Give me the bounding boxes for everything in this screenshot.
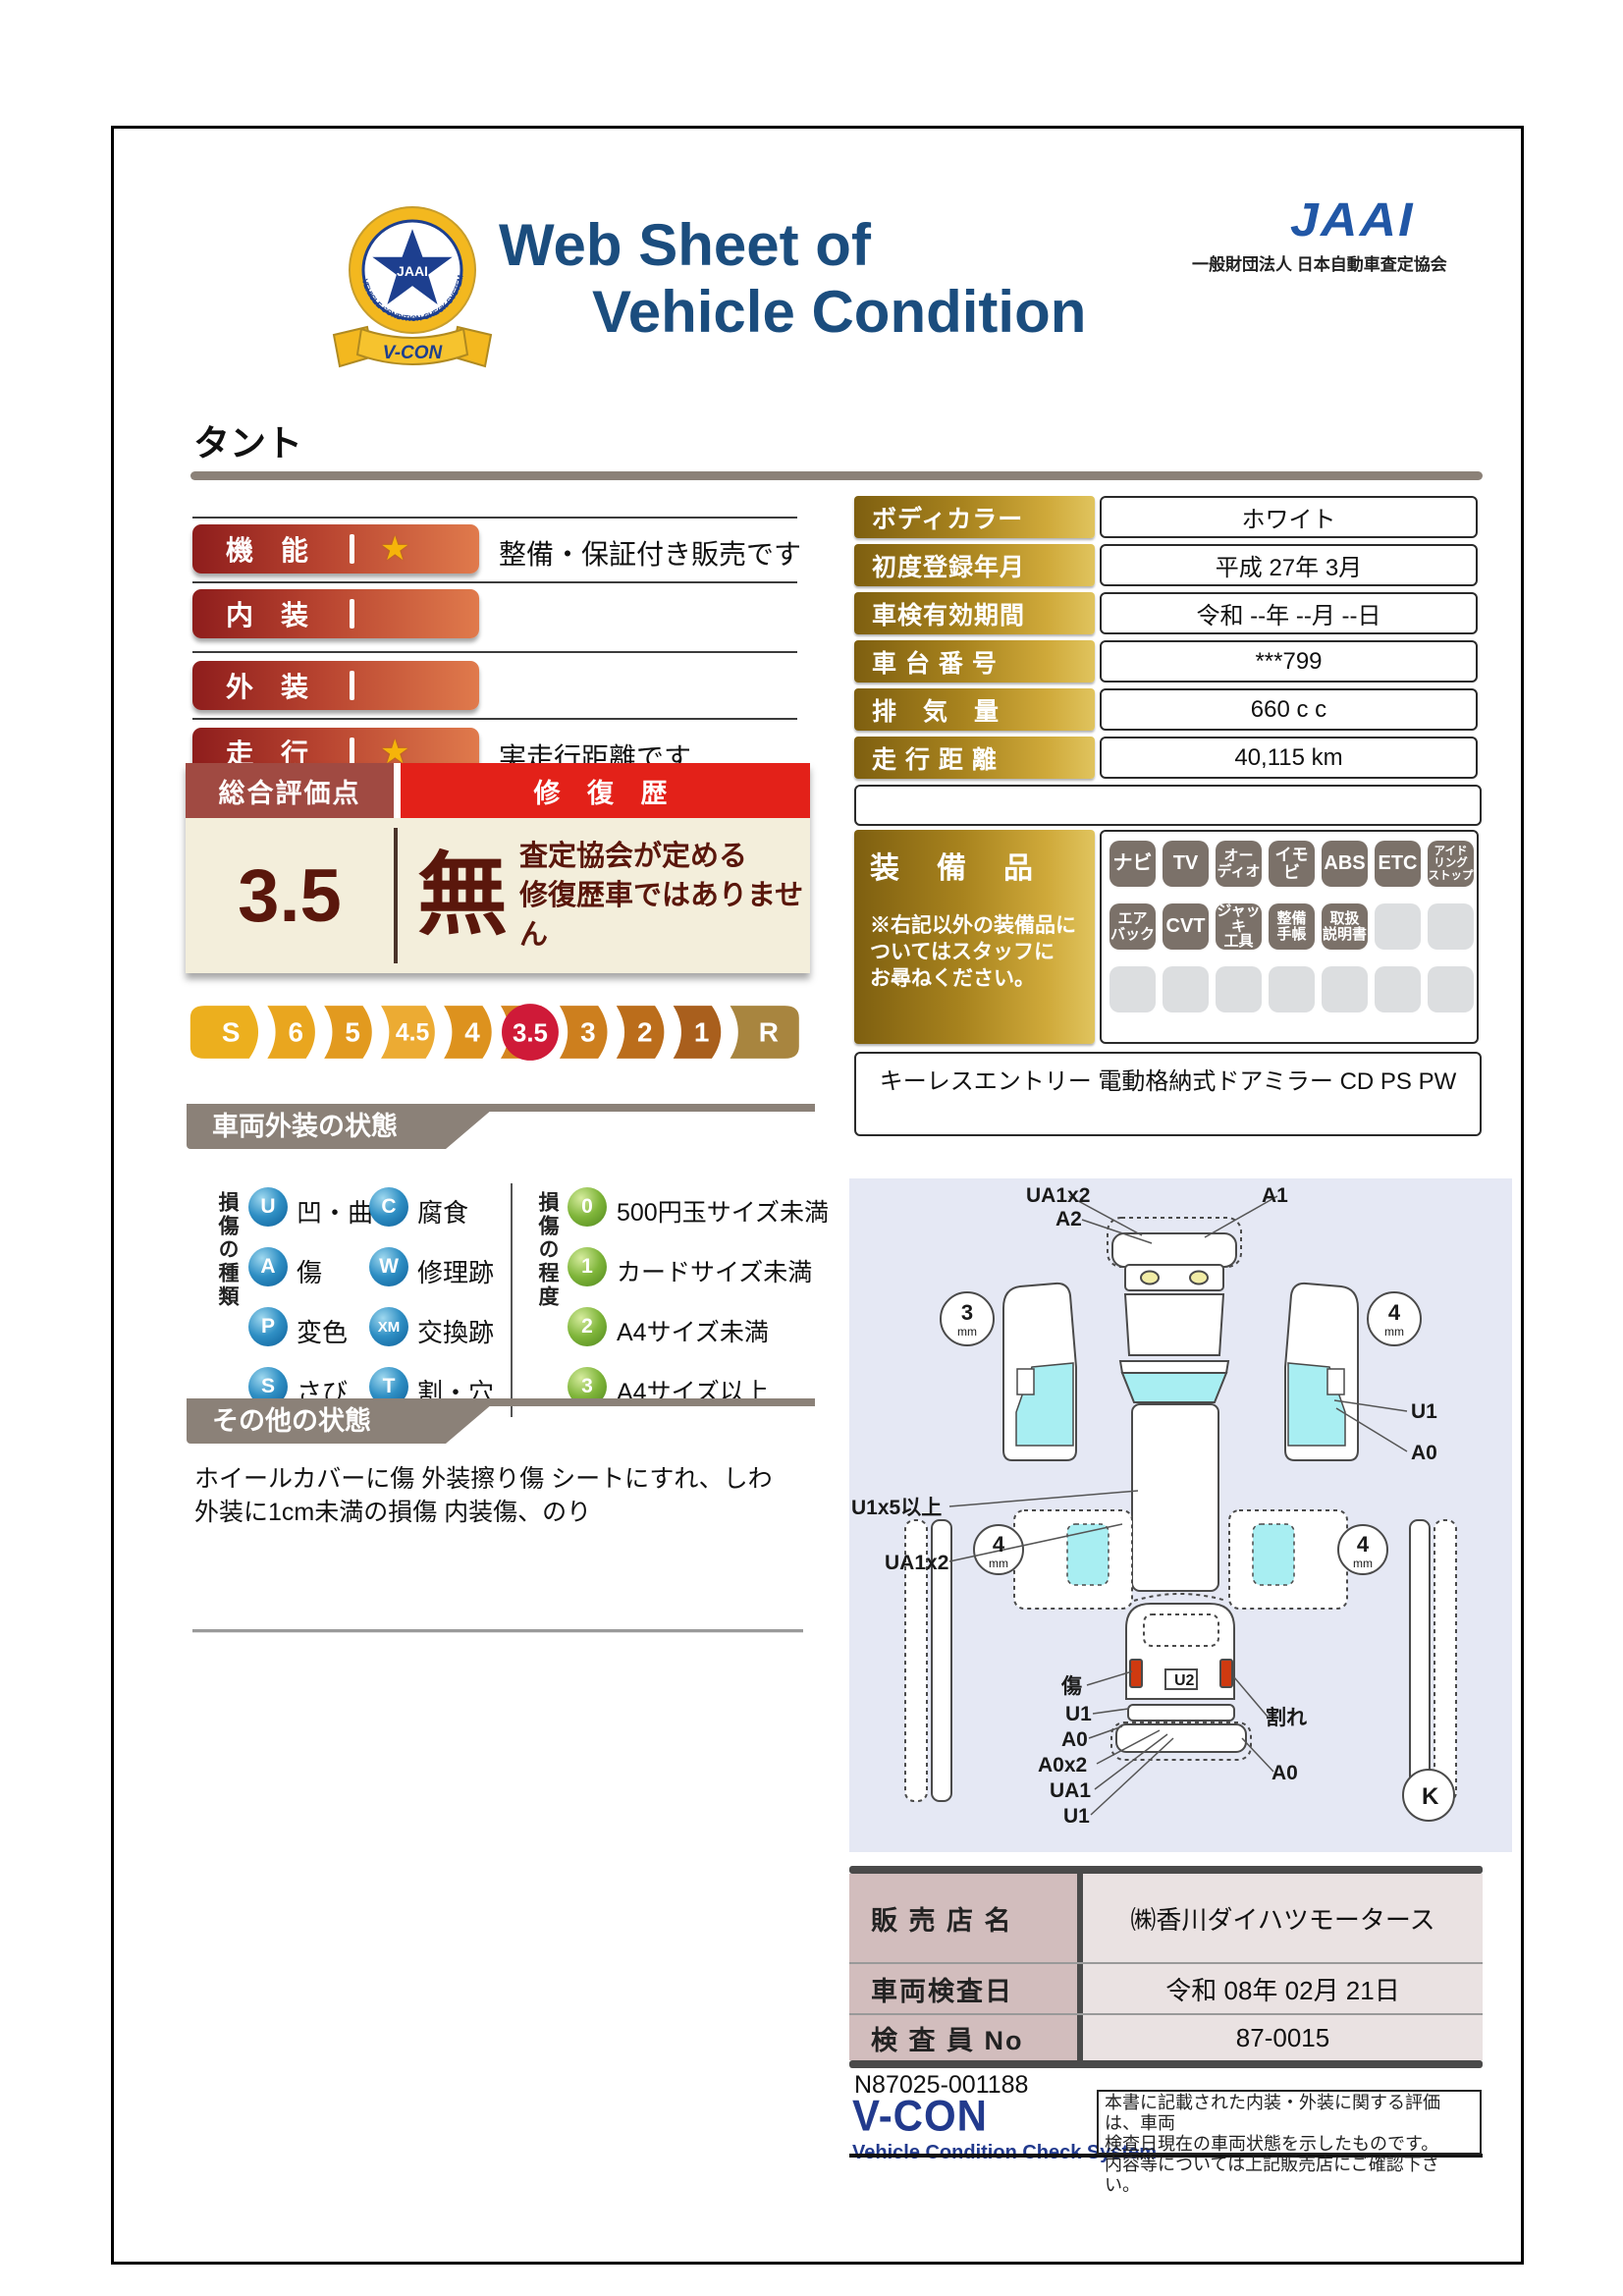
headlight-left [1141,1272,1159,1285]
equipment-badge-empty [1216,966,1262,1012]
other-note-line1: ホイールカバーに傷 外装擦り傷 シートにすれ、しわ [194,1462,813,1496]
repair-note-line1: 査定協会が定める [519,837,810,876]
scale-label-R: R [759,1016,779,1047]
right-door-mirror [1327,1369,1344,1394]
other-condition-notes: ホイールカバーに傷 外装擦り傷 シートにすれ、しわ 外装に1cm未満の損傷 内装… [194,1462,813,1529]
leader-line [949,1491,1138,1506]
vcon-wordmark: V-CON [852,2092,988,2141]
detail-label: 車 台 番 号 [854,640,1095,683]
exterior-section-header: 車両外装の状態 [187,1104,815,1149]
dealer-row-inspector: 検 査 員 No 87-0015 [849,2015,1483,2060]
notes-rule-line [192,1629,803,1633]
damage-label: U1 [1065,1703,1092,1725]
detail-label: 初度登録年月 [854,544,1095,586]
vcon-badge-logo: VEHICLE CONDITION CHECK SYSTEM JAAI V-CO… [324,190,501,386]
other-note-line2: 外装に1cm未満の損傷 内装傷、のり [194,1496,813,1529]
sheet-border: VEHICLE CONDITION CHECK SYSTEM JAAI V-CO… [111,126,1524,2265]
overall-body: 3.5 無 査定協会が定める 修復歴車ではありません [186,818,810,973]
damage-label: UA1 [1050,1779,1091,1802]
tail-lamp-left [1130,1660,1142,1687]
scale-label-6: 6 [289,1016,304,1047]
damage-level-icon-1: 1 [568,1247,607,1286]
hood [1125,1294,1223,1355]
tread-unit: mm [1384,1325,1404,1339]
tread-unit: mm [989,1557,1008,1570]
rating-label: 内 装 [192,594,342,633]
rear-lower-bumper [1116,1724,1246,1752]
tread-depth-rear-right: 4 [1357,1532,1370,1557]
rating-bar-function: 機 能 ★ [192,524,479,574]
right-rear-window [1253,1524,1294,1585]
equipment-badge-cvt: CVT [1163,903,1209,950]
equipment-panel-right: ナビ TV オー ディオ イモビ ABS ETC アイド リング ストップ エア… [1100,830,1479,1044]
equipment-note: ※右記以外の装備品に ついてはスタッフに お尋ねください。 [870,912,1076,992]
front-bumper [1112,1233,1236,1267]
detail-value: ホワイト [1100,496,1478,538]
equipment-badge-empty [1428,903,1474,950]
damage-type-icon-C: C [369,1187,408,1227]
repair-history-title: 修 復 歴 [401,763,810,818]
damage-type-icon-XM: XM [369,1307,408,1346]
equipment-note-line2: ついてはスタッフに [870,939,1076,965]
equipment-badge-tv: TV [1163,841,1209,887]
scale-label-2: 2 [637,1016,653,1047]
equipment-badge-audio: オー ディオ [1216,841,1262,887]
left-door-mirror [1017,1369,1034,1394]
scale-label-3.5: 3.5 [513,1019,548,1047]
scale-label-4.5: 4.5 [396,1019,430,1046]
equipment-badge-abs: ABS [1322,841,1368,887]
damage-label: U1 [1411,1400,1437,1423]
damage-level-icon-2: 2 [568,1307,607,1346]
equipment-badge-empty [1375,966,1421,1012]
disclaimer-line3: 内容等については上記販売店にご確認下さい。 [1105,2155,1474,2196]
equipment-note-line1: ※右記以外の装備品に [870,912,1076,939]
scale-label-4: 4 [464,1016,480,1047]
equipment-note-line3: お尋ねください。 [870,965,1076,992]
cowl [1120,1361,1228,1373]
damage-level-icon-0: 0 [568,1187,607,1227]
damage-label: UA1x2 [885,1552,948,1574]
equipment-badge-etc: ETC [1375,841,1421,887]
tread-depth-front-right: 4 [1388,1300,1401,1325]
equipment-badge-empty [1428,966,1474,1012]
detail-value: 平成 27年 3月 [1100,544,1478,586]
damage-type-icon-W: W [369,1247,408,1286]
headlight-right [1190,1272,1208,1285]
damage-type-icon-P: P [248,1307,288,1346]
rating-separator [192,718,797,720]
vehicle-name: タント [193,413,302,466]
dealer-table-bottom-bar [849,2060,1483,2068]
scale-label-5: 5 [345,1016,360,1047]
left-rear-window [1067,1524,1109,1585]
overall-header: 総合評価点 修 復 歴 [186,763,810,818]
rating-bar-interior: 内 装 [192,589,479,638]
legend-divider [511,1183,513,1417]
detail-label: 排 気 量 [854,688,1095,731]
leader-line [1234,1677,1268,1717]
equipment-grid: ナビ TV オー ディオ イモビ ABS ETC アイド リング ストップ エア… [1109,841,1474,1012]
dealer-table: 販 売 店 名 ㈱香川ダイハツモータース 車両検査日 令和 08年 02月 21… [849,1866,1483,2068]
disclaimer-box: 本書に記載された内装・外装に関する評価は、車両 検査日現在の車両状態を示したもの… [1097,2090,1482,2155]
damage-type-label: 変色 [297,1313,348,1349]
equipment-badge-jack-tools: ジャッキ 工具 [1216,903,1262,950]
windshield [1122,1373,1226,1402]
equipment-badge-empty [1109,966,1156,1012]
damage-label: A1 [1262,1184,1288,1207]
tail-lamp-right [1220,1660,1232,1687]
empty-detail-box [854,785,1482,826]
rear-window-top-outline [1134,1594,1226,1601]
rating-separator [192,651,797,653]
detail-value: ***799 [1100,640,1478,683]
roof [1132,1404,1218,1591]
damage-type-label: 傷 [297,1253,322,1289]
dealer-value: 87-0015 [1083,2015,1483,2060]
repair-history-note: 査定協会が定める 修復歴車ではありません [519,837,810,955]
equipment-badge-empty [1322,966,1368,1012]
right-sill [1410,1520,1430,1801]
page-title-line1: Web Sheet of [499,211,871,279]
damage-levels-title: 損傷の程度 [532,1191,562,1427]
extra-equipment-box: キーレスエントリー 電動格納式ドアミラー CD PS PW [854,1052,1482,1136]
equipment-badge-service-book: 整備 手帳 [1269,903,1315,950]
damage-label: 割れ [1266,1706,1307,1729]
tread-unit: mm [957,1325,977,1339]
overall-score-value: 3.5 [186,818,394,973]
repair-note-line2: 修復歴車ではありません [519,876,810,955]
overall-header-divider [394,763,401,818]
damage-level-label: 500円玉サイズ未満 [617,1193,829,1229]
damage-label: U1 [1063,1805,1090,1828]
tread-depth-front-left: 3 [961,1300,973,1325]
detail-label: ボディカラー [854,496,1095,538]
dealer-value: 令和 08年 02月 21日 [1083,1964,1483,2013]
equipment-badge-empty [1163,966,1209,1012]
equipment-title: 装 備 品 [870,844,1037,887]
dealer-label: 車両検査日 [849,1964,1077,2013]
damage-label: A0 [1271,1762,1298,1784]
right-sill-outline [1434,1520,1456,1801]
damage-type-label: 交換跡 [417,1313,494,1349]
tread-depth-rear-left: 4 [993,1532,1005,1557]
scale-label-1: 1 [694,1016,710,1047]
damage-types-title: 損傷の種類 [212,1191,242,1427]
equipment-badge-navi: ナビ [1109,841,1156,887]
equipment-badge-idling-stop: アイド リング ストップ [1428,841,1474,887]
tread-unit: mm [1353,1557,1373,1570]
rating-label: 機 能 [192,529,342,569]
damage-label: UA1x2 [1026,1184,1090,1207]
overall-score-title: 総合評価点 [186,763,394,818]
ribbon-label: V-CON [383,343,444,363]
damage-diagram: UA1x2 A2 A1 U1x5以上 UA1x2 U1 A0 傷 U1 A0 A… [849,1178,1512,1852]
rating-separator [192,517,797,519]
overall-score-box: 総合評価点 修 復 歴 3.5 無 査定協会が定める 修復歴車ではありません [186,763,810,973]
page-title-line2: Vehicle Condition [592,278,1086,346]
rating-divider [350,599,354,629]
repair-history-value: 無 [417,850,508,941]
jaai-org-name: 一般財団法人 日本自動車査定協会 [1192,250,1447,275]
dealer-label: 検 査 員 No [849,2015,1077,2060]
damage-level-label: A4サイズ未満 [617,1313,769,1348]
detail-label: 車検有効期間 [854,592,1095,634]
damage-label: A0 [1411,1442,1437,1464]
other-section-title: その他の状態 [187,1398,499,1444]
damage-type-label: 凹・曲 [297,1193,373,1230]
damage-label: A0x2 [1038,1754,1087,1777]
other-section-header: その他の状態 [187,1398,815,1444]
rating-bar-exterior: 外 装 [192,661,479,710]
damage-label: A2 [1055,1208,1082,1230]
dealer-value: ㈱香川ダイハツモータース [1083,1874,1483,1962]
scale-label-3: 3 [580,1016,596,1047]
leader-line [1242,1738,1273,1772]
star-icon: ★ [380,529,409,569]
damage-label: A0 [1061,1728,1088,1751]
extra-equipment-text: キーレスエントリー 電動格納式ドアミラー CD PS PW [880,1062,1457,1096]
dealer-row-shop: 販 売 店 名 ㈱香川ダイハツモータース [849,1874,1483,1962]
scale-label-S: S [222,1016,241,1047]
score-scale: S 6 5 4.5 4 3.5 3 2 1 R [185,1002,817,1061]
damage-type-icon-U: U [248,1187,288,1227]
damage-type-icon-A: A [248,1247,288,1286]
equipment-badge-immobilizer: イモビ [1269,841,1315,887]
rating-label: 外 装 [192,666,342,705]
damage-label: 傷 [1060,1674,1082,1698]
equipment-badge-empty [1375,903,1421,950]
rating-note: 整備・保証付き販売です [499,533,801,573]
damage-type-label: 修理跡 [417,1253,494,1289]
exterior-section-title: 車両外装の状態 [187,1104,499,1149]
detail-value: 40,115 km [1100,737,1478,779]
header-divider [190,471,1483,480]
page: VEHICLE CONDITION CHECK SYSTEM JAAI V-CO… [0,0,1623,2296]
dealer-label: 販 売 店 名 [849,1874,1077,1962]
corner-mark: K [1422,1783,1439,1810]
damage-label: U1x5以上 [851,1497,942,1519]
damage-type-label: 腐食 [417,1193,468,1230]
license-plate-label: U2 [1174,1672,1195,1689]
dealer-row-inspection-date: 車両検査日 令和 08年 02月 21日 [849,1964,1483,2013]
rating-separator [192,581,797,583]
equipment-panel-left: 装 備 品 ※右記以外の装備品に ついてはスタッフに お尋ねください。 [854,830,1095,1044]
detail-value: 令和 --年 --月 --日 [1100,592,1478,634]
rear-bumper-strip [1128,1705,1234,1721]
leader-line [1093,1709,1128,1714]
disclaimer-line1: 本書に記載された内装・外装に関する評価は、車両 [1105,2093,1474,2134]
dealer-table-top-bar [849,1866,1483,1874]
jaai-logo: JAAI [1290,193,1415,247]
detail-value: 660 c c [1100,688,1478,731]
badge-star-label: JAAI [397,263,428,279]
disclaimer-line2: 検査日現在の車両状態を示したものです。 [1105,2134,1474,2155]
equipment-badge-empty [1269,966,1315,1012]
rating-divider [350,534,354,564]
equipment-badge-airbag: エア バック [1109,903,1156,950]
damage-level-label: カードサイズ未満 [617,1253,812,1288]
equipment-badge-manual: 取扱 説明書 [1322,903,1368,950]
rating-divider [350,671,354,700]
detail-label: 走 行 距 離 [854,737,1095,779]
